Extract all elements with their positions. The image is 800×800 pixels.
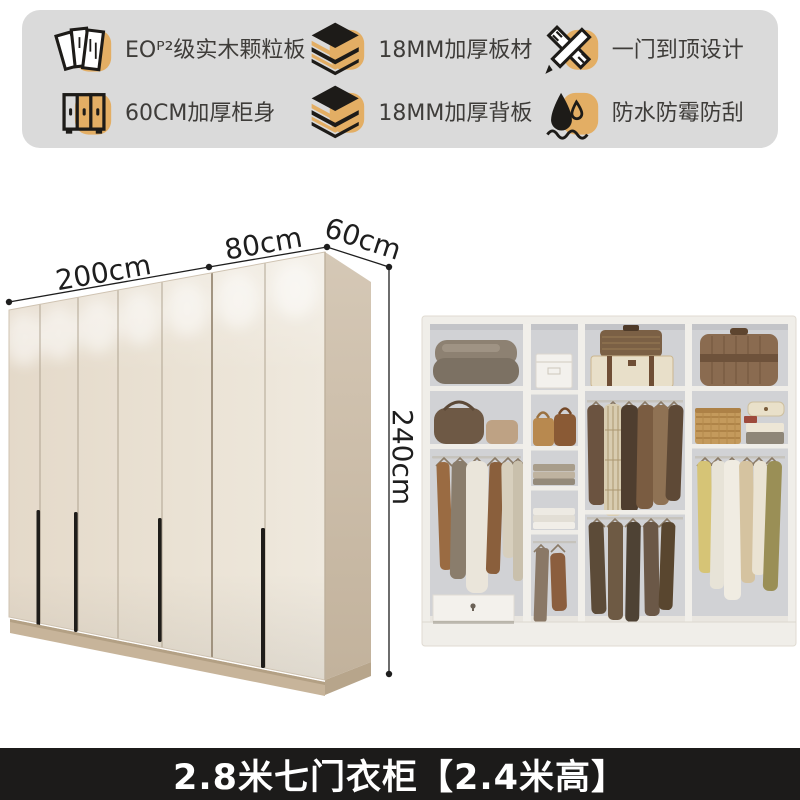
shelf bbox=[585, 510, 685, 515]
hanging-rod bbox=[533, 541, 576, 543]
shelf bbox=[531, 446, 578, 451]
shelf bbox=[585, 386, 685, 391]
thick-back-panel-icon bbox=[305, 82, 369, 140]
hanging-rod bbox=[587, 517, 683, 520]
drawer bbox=[433, 595, 514, 624]
product-caption: 2.8米七门衣柜【2.4米高】 bbox=[173, 749, 627, 800]
trunks bbox=[591, 325, 673, 387]
product-image: EOᴾ²级实木颗粒板 18MM加厚板材 bbox=[0, 0, 800, 800]
shelf bbox=[692, 444, 788, 449]
feature-item: 18MM加厚背板 bbox=[305, 82, 538, 140]
feature-label: 60CM加厚柜身 bbox=[125, 95, 275, 127]
basket-and-folded bbox=[695, 402, 784, 444]
thick-panel-icon bbox=[305, 19, 369, 77]
interior-photo bbox=[420, 310, 798, 648]
blanket-pile bbox=[433, 340, 519, 384]
hanging-coats bbox=[587, 404, 684, 516]
feature-item: 60CM加厚柜身 bbox=[52, 82, 305, 140]
product-caption-bar: 2.8米七门衣柜【2.4米高】 bbox=[0, 748, 800, 800]
feature-item: 18MM加厚板材 bbox=[305, 19, 538, 77]
particle-board-icon bbox=[52, 19, 116, 77]
suitcase bbox=[700, 328, 778, 386]
full-door-design-icon bbox=[539, 19, 603, 77]
shelf bbox=[430, 444, 523, 449]
dim-height: 240cm bbox=[386, 409, 419, 505]
hanging-rod bbox=[587, 400, 683, 403]
feature-label: EOᴾ²级实木颗粒板 bbox=[125, 32, 305, 64]
shelf bbox=[531, 390, 578, 395]
feature-item: 一门到顶设计 bbox=[539, 19, 772, 77]
wardrobe-drawing: 200cm 80cm 60cm 240cm bbox=[0, 210, 420, 710]
feature-item: 防水防霉防刮 bbox=[539, 82, 772, 140]
folded-sweaters bbox=[533, 464, 575, 485]
features-panel: EOᴾ²级实木颗粒板 18MM加厚板材 bbox=[22, 10, 778, 148]
thick-cabinet-icon bbox=[52, 82, 116, 140]
hanging-trousers bbox=[588, 522, 675, 622]
shelf bbox=[692, 386, 788, 391]
shelf bbox=[430, 386, 523, 391]
shelf bbox=[531, 530, 578, 535]
feature-label: 18MM加厚背板 bbox=[378, 95, 532, 127]
feature-item: EOᴾ²级实木颗粒板 bbox=[52, 19, 305, 77]
feature-label: 防水防霉防刮 bbox=[612, 95, 744, 127]
folded-shirts bbox=[533, 508, 575, 529]
feature-label: 18MM加厚板材 bbox=[378, 32, 532, 64]
wardrobe-side-panel bbox=[325, 252, 371, 695]
wardrobe-front bbox=[5, 252, 325, 680]
feature-label: 一门到顶设计 bbox=[612, 32, 744, 64]
shelf bbox=[531, 486, 578, 491]
storage-box bbox=[536, 354, 572, 388]
waterproof-icon bbox=[539, 82, 603, 140]
